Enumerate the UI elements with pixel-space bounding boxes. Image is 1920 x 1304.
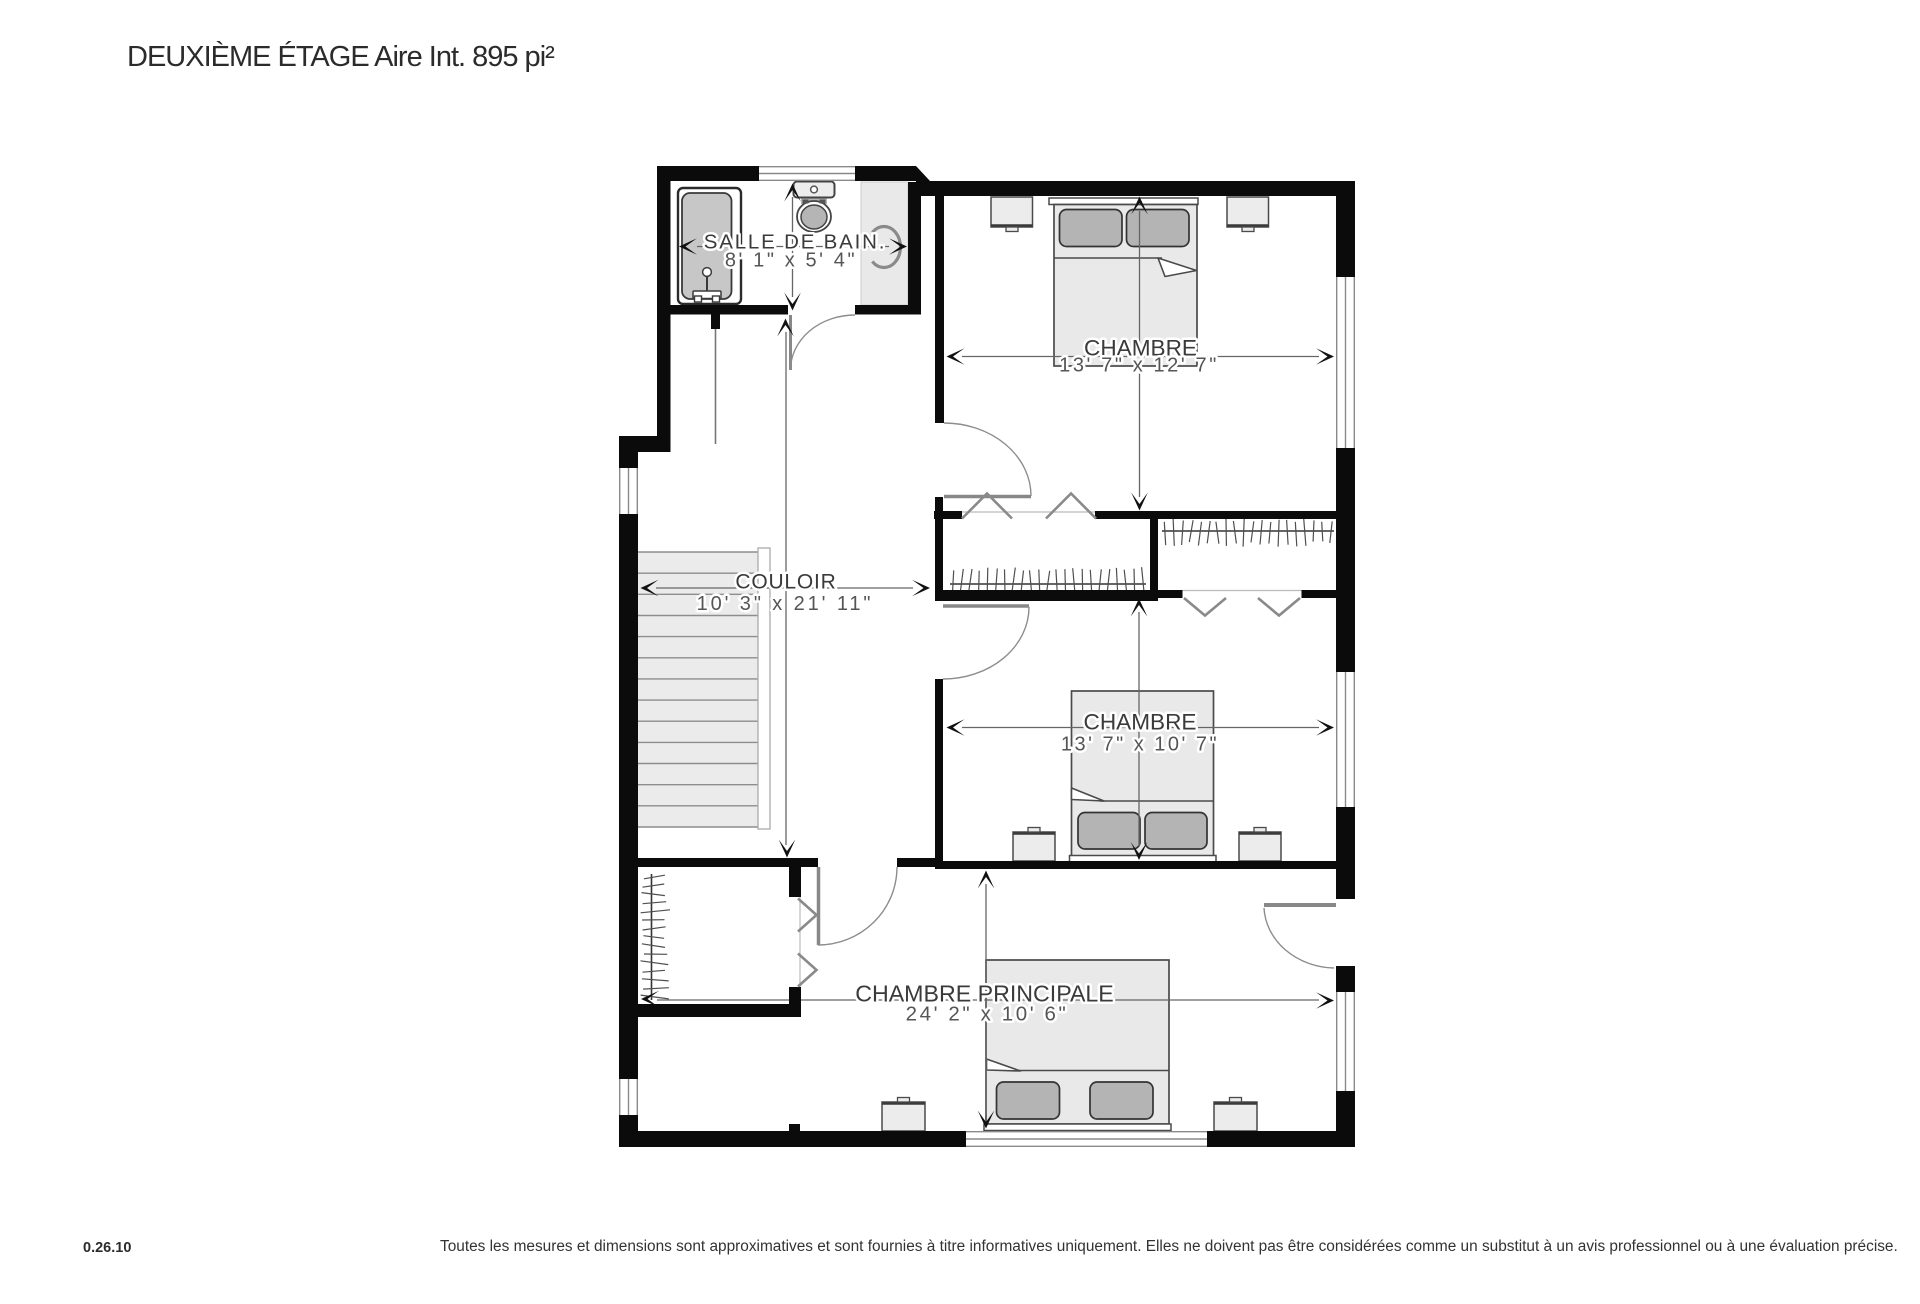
svg-text:0.26.10: 0.26.10 [83, 1240, 131, 1256]
svg-text:DEUXIÈME ÉTAGE Aire Int. 895 p: DEUXIÈME ÉTAGE Aire Int. 895 pi² [127, 40, 555, 73]
svg-text:13' 7" x 10' 7": 13' 7" x 10' 7" [1061, 734, 1219, 756]
svg-text:13' 7" x 12' 7": 13' 7" x 12' 7" [1059, 355, 1219, 377]
svg-text:CHAMBRE: CHAMBRE [1084, 710, 1197, 735]
svg-text:COULOIR: COULOIR [735, 571, 836, 594]
svg-text:10' 3" x 21' 11": 10' 3" x 21' 11" [697, 593, 874, 615]
svg-text:24' 2" x 10' 6": 24' 2" x 10' 6" [906, 1003, 1069, 1026]
svg-text:8' 1" x 5' 4": 8' 1" x 5' 4" [725, 250, 857, 272]
svg-text:Toutes les mesures et dimensio: Toutes les mesures et dimensions sont ap… [440, 1238, 1898, 1255]
